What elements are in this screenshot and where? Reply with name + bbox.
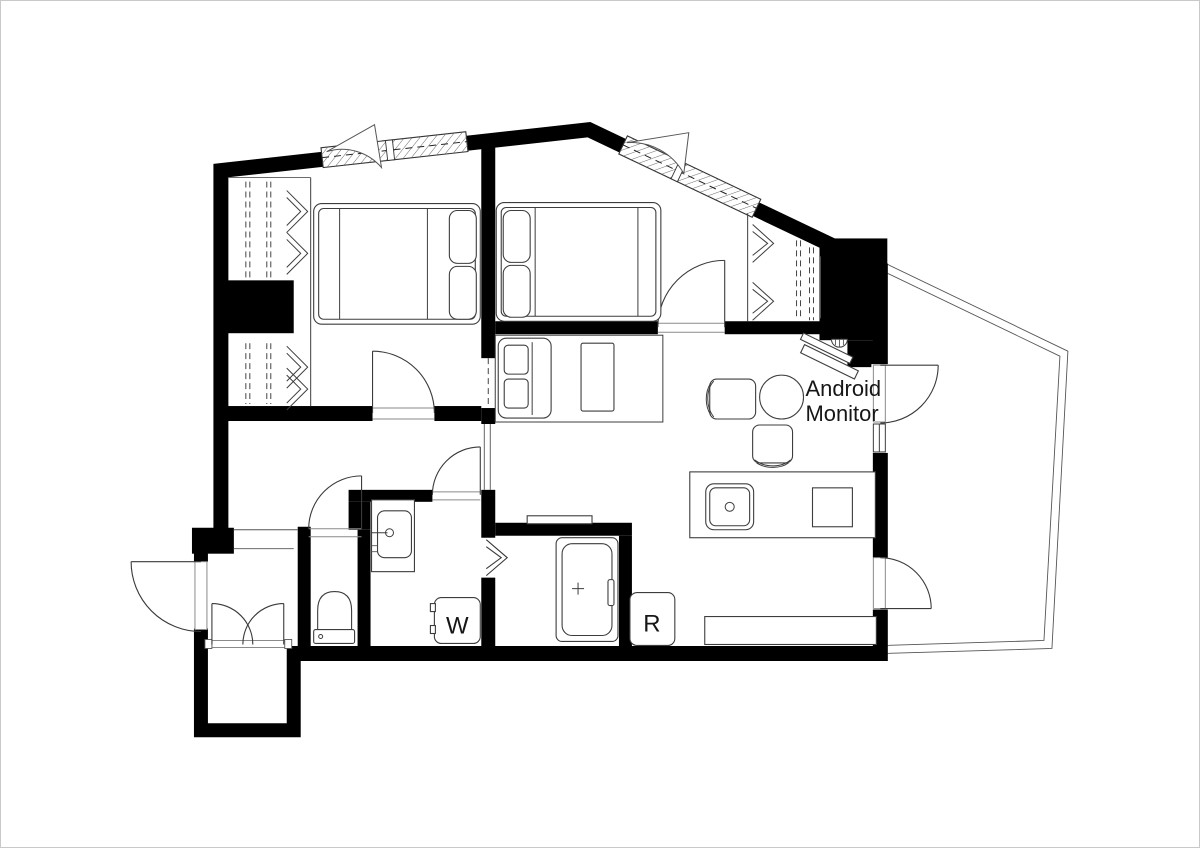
- washing-machine-icon: W: [430, 598, 480, 644]
- refrigerator-label: R: [643, 611, 660, 638]
- bathtub-icon: [556, 538, 618, 642]
- dining-chair-bottom-icon: [753, 425, 793, 467]
- kitchen-island: [690, 472, 876, 538]
- balcony-outline: [881, 261, 1068, 653]
- dining-set: [706, 375, 803, 467]
- entry-door-icon: [131, 562, 201, 632]
- bathroom-shelf: [527, 516, 592, 524]
- dining-chair-left-icon: [706, 379, 755, 419]
- dining-table-icon: [760, 375, 804, 419]
- window-right-icon: [873, 424, 885, 452]
- annotation-labels: Android Monitor: [806, 376, 882, 426]
- tv-board-icon: [705, 617, 877, 645]
- floor-plan-drawing: R W Android Monitor: [1, 1, 1199, 847]
- android-monitor-label-line2: Monitor: [806, 401, 879, 426]
- low-table-icon: [581, 343, 614, 411]
- sofa-icon: [498, 338, 551, 418]
- bed-bedroom2-icon: [496, 203, 661, 322]
- double-doors-icon: [212, 604, 284, 645]
- toilet-icon: [314, 592, 355, 644]
- window-bedroom1-icon: [321, 125, 468, 168]
- kitchen-sink-icon: [706, 484, 754, 530]
- bed-bedroom1-icon: [314, 204, 481, 325]
- bedroom1-door-icon: [373, 351, 435, 413]
- washroom-door-icon: [432, 447, 480, 495]
- bedroom2-door-icon: [658, 260, 725, 327]
- bathroom-folding-door-icon: [486, 540, 507, 576]
- floor-plan-page: R W Android Monitor: [0, 0, 1200, 848]
- sofa-area: [495, 335, 663, 422]
- closet-bedroom1: [228, 178, 311, 410]
- refrigerator-icon: R: [630, 593, 675, 646]
- washing-machine-label: W: [446, 613, 469, 640]
- hanger-chevron-icons: [753, 224, 774, 320]
- vanity-icon: [372, 500, 415, 572]
- cooktop-icon: [812, 488, 852, 527]
- android-monitor-label-line1: Android: [806, 376, 882, 401]
